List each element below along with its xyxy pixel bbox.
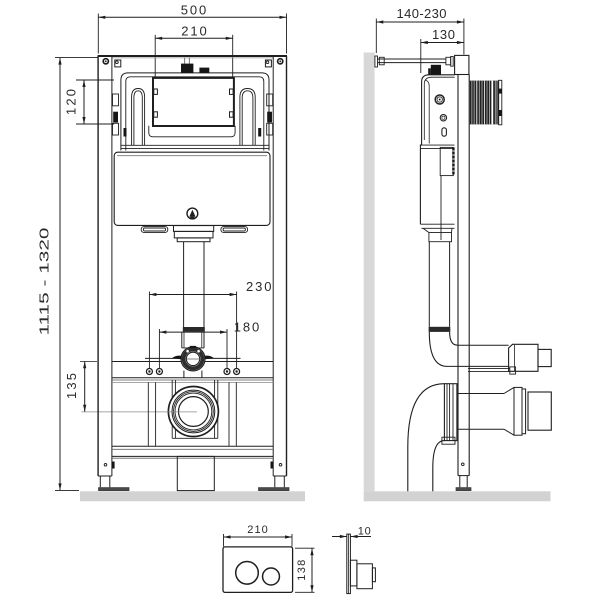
svg-text:138: 138: [296, 560, 308, 581]
svg-text:140-230: 140-230: [397, 6, 447, 21]
svg-text:10: 10: [358, 525, 371, 537]
svg-text:230: 230: [246, 279, 272, 294]
svg-text:135: 135: [64, 373, 79, 399]
svg-text:180: 180: [234, 319, 260, 334]
svg-text:1115 - 1320: 1115 - 1320: [37, 228, 52, 336]
svg-text:210: 210: [181, 24, 207, 39]
svg-text:120: 120: [64, 89, 79, 115]
svg-text:130: 130: [432, 27, 455, 42]
svg-text:500: 500: [181, 2, 207, 17]
svg-text:210: 210: [247, 524, 268, 536]
